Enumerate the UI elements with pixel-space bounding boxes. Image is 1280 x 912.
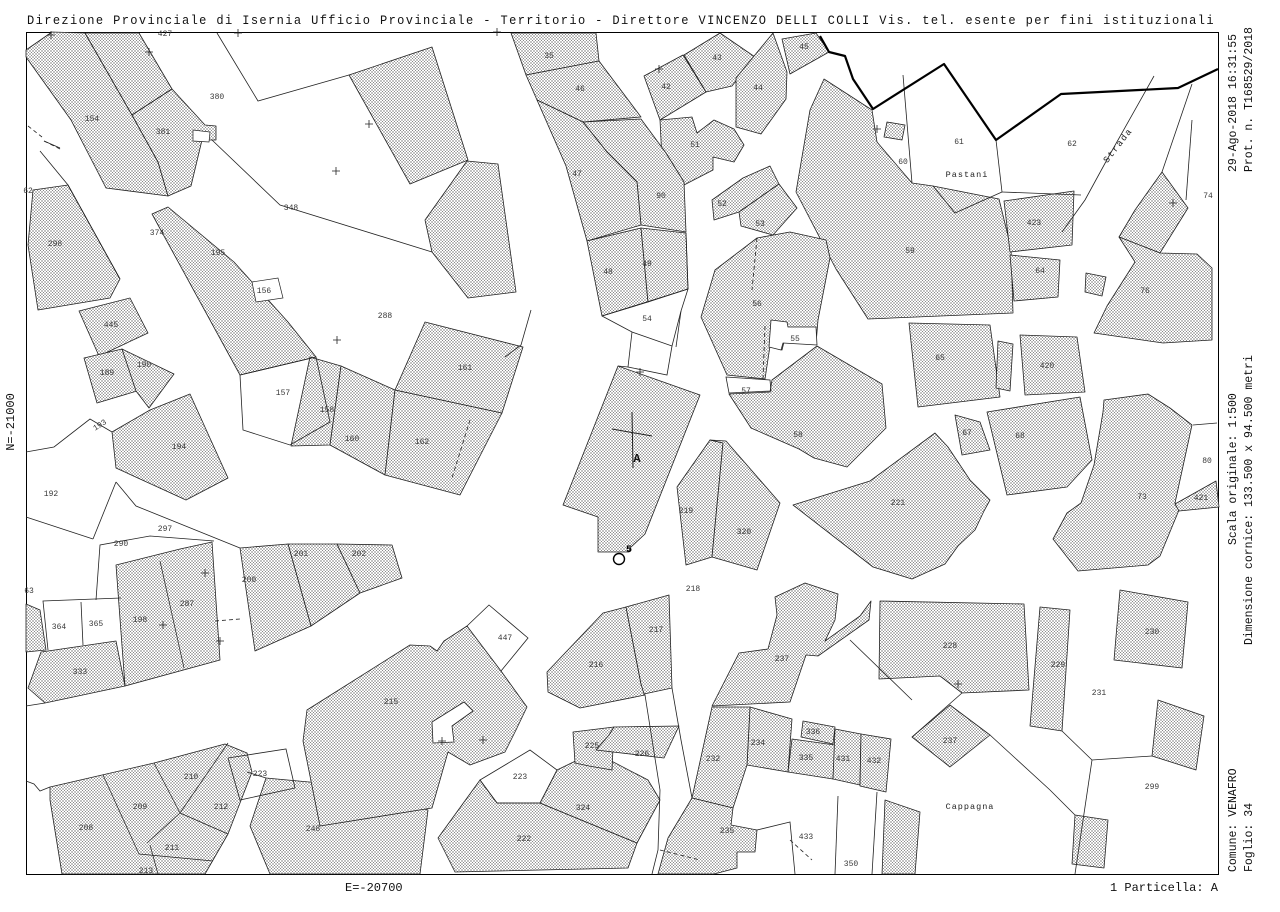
svg-text:64: 64	[1035, 267, 1045, 276]
svg-text:Prot. n. T168529/2018: Prot. n. T168529/2018	[1243, 27, 1256, 172]
svg-text:62: 62	[23, 187, 33, 196]
svg-text:211: 211	[165, 844, 180, 853]
svg-text:348: 348	[284, 204, 299, 213]
svg-text:42: 42	[661, 83, 671, 92]
svg-text:43: 43	[712, 54, 722, 63]
svg-text:208: 208	[79, 824, 94, 833]
svg-text:217: 217	[649, 626, 664, 635]
svg-text:59: 59	[905, 247, 915, 256]
svg-text:80: 80	[1202, 457, 1212, 466]
svg-text:231: 231	[1092, 689, 1107, 698]
svg-text:223: 223	[513, 773, 528, 782]
svg-text:290: 290	[114, 540, 129, 549]
svg-text:62: 62	[1067, 140, 1077, 149]
svg-text:58: 58	[793, 431, 803, 440]
svg-text:Foglio: 34: Foglio: 34	[1243, 803, 1256, 872]
svg-text:57: 57	[741, 387, 751, 396]
svg-text:194: 194	[172, 443, 187, 452]
svg-text:230: 230	[1145, 628, 1160, 637]
svg-text:A: A	[633, 452, 641, 466]
svg-text:N=-21000: N=-21000	[4, 393, 18, 451]
svg-text:320: 320	[737, 528, 752, 537]
svg-text:336: 336	[806, 728, 821, 737]
svg-text:215: 215	[384, 698, 399, 707]
svg-text:213: 213	[139, 867, 154, 876]
svg-text:54: 54	[642, 315, 652, 324]
svg-text:48: 48	[603, 268, 613, 277]
svg-text:374: 374	[150, 229, 165, 238]
svg-text:Scala originale: 1:500: Scala originale: 1:500	[1227, 393, 1240, 545]
svg-text:235: 235	[720, 827, 735, 836]
svg-text:5: 5	[626, 545, 632, 556]
svg-text:423: 423	[1027, 219, 1042, 228]
svg-text:52: 52	[717, 200, 727, 209]
svg-text:192: 192	[44, 490, 59, 499]
svg-text:223: 223	[253, 770, 268, 779]
svg-text:47: 47	[572, 170, 582, 179]
svg-text:234: 234	[751, 739, 766, 748]
svg-text:209: 209	[133, 803, 148, 812]
svg-text:226: 226	[635, 750, 650, 759]
svg-text:248: 248	[306, 825, 321, 834]
svg-text:433: 433	[799, 833, 814, 842]
svg-text:160: 160	[345, 435, 360, 444]
svg-text:61: 61	[954, 138, 964, 147]
svg-text:298: 298	[48, 240, 63, 249]
svg-text:432: 432	[867, 757, 882, 766]
svg-text:65: 65	[935, 354, 945, 363]
svg-text:63: 63	[24, 587, 34, 596]
svg-text:225: 225	[585, 742, 600, 751]
svg-text:45: 45	[799, 43, 809, 52]
svg-text:Pastani: Pastani	[946, 170, 989, 180]
svg-text:380: 380	[210, 93, 225, 102]
svg-text:E=-20700: E=-20700	[345, 881, 403, 895]
svg-text:Comune: VENAFRO: Comune: VENAFRO	[1227, 768, 1240, 872]
svg-text:46: 46	[575, 85, 585, 94]
svg-text:350: 350	[844, 860, 859, 869]
svg-text:229: 229	[1051, 661, 1066, 670]
svg-text:297: 297	[158, 525, 173, 534]
svg-text:333: 333	[73, 668, 88, 677]
svg-text:Direzione Provinciale di Isern: Direzione Provinciale di Isernia Ufficio…	[27, 13, 1215, 28]
svg-text:218: 218	[686, 585, 701, 594]
svg-text:365: 365	[89, 620, 104, 629]
svg-text:287: 287	[180, 600, 195, 609]
svg-text:232: 232	[706, 755, 721, 764]
svg-text:216: 216	[589, 661, 604, 670]
svg-text:445: 445	[104, 321, 119, 330]
svg-text:222: 222	[517, 835, 532, 844]
svg-text:288: 288	[378, 312, 393, 321]
svg-text:49: 49	[642, 260, 652, 269]
svg-text:237: 237	[943, 737, 958, 746]
svg-text:237: 237	[775, 655, 790, 664]
svg-text:Dimensione cornice: 133.500 x: Dimensione cornice: 133.500 x 94.500 met…	[1243, 355, 1256, 645]
svg-text:198: 198	[133, 616, 148, 625]
svg-text:51: 51	[690, 141, 700, 150]
svg-text:189: 189	[100, 369, 115, 378]
svg-text:161: 161	[458, 364, 473, 373]
svg-text:421: 421	[1194, 494, 1209, 503]
svg-text:427: 427	[158, 30, 173, 39]
svg-text:200: 200	[242, 576, 257, 585]
svg-text:74: 74	[1203, 192, 1213, 201]
svg-text:55: 55	[790, 335, 800, 344]
svg-text:447: 447	[498, 634, 513, 643]
svg-text:67: 67	[962, 429, 972, 438]
svg-text:76: 76	[1140, 287, 1150, 296]
svg-text:324: 324	[576, 804, 591, 813]
svg-text:190: 190	[137, 361, 152, 370]
svg-text:53: 53	[755, 220, 765, 229]
svg-text:68: 68	[1015, 432, 1025, 441]
svg-text:73: 73	[1137, 493, 1147, 502]
svg-text:44: 44	[753, 84, 763, 93]
svg-text:431: 431	[836, 755, 851, 764]
svg-text:156: 156	[257, 287, 272, 296]
svg-text:195: 195	[211, 249, 226, 258]
svg-text:335: 335	[799, 754, 814, 763]
svg-text:35: 35	[544, 52, 554, 61]
svg-text:90: 90	[656, 192, 666, 201]
svg-text:157: 157	[276, 389, 291, 398]
svg-text:219: 219	[679, 507, 694, 516]
svg-text:364: 364	[52, 623, 67, 632]
svg-text:56: 56	[752, 300, 762, 309]
svg-text:210: 210	[184, 773, 199, 782]
svg-text:1 Particella: A: 1 Particella: A	[1110, 881, 1219, 895]
svg-text:202: 202	[352, 550, 367, 559]
svg-text:381: 381	[156, 128, 171, 137]
svg-text:162: 162	[415, 438, 430, 447]
svg-text:158: 158	[320, 406, 335, 415]
svg-text:154: 154	[85, 115, 100, 124]
svg-text:228: 228	[943, 642, 958, 651]
svg-text:29-Ago-2018 16:31:55: 29-Ago-2018 16:31:55	[1227, 34, 1240, 172]
svg-text:Cappagna: Cappagna	[946, 802, 995, 812]
svg-text:420: 420	[1040, 362, 1055, 371]
svg-text:201: 201	[294, 550, 309, 559]
svg-text:212: 212	[214, 803, 229, 812]
svg-text:60: 60	[898, 158, 908, 167]
svg-text:221: 221	[891, 499, 906, 508]
svg-text:299: 299	[1145, 783, 1160, 792]
